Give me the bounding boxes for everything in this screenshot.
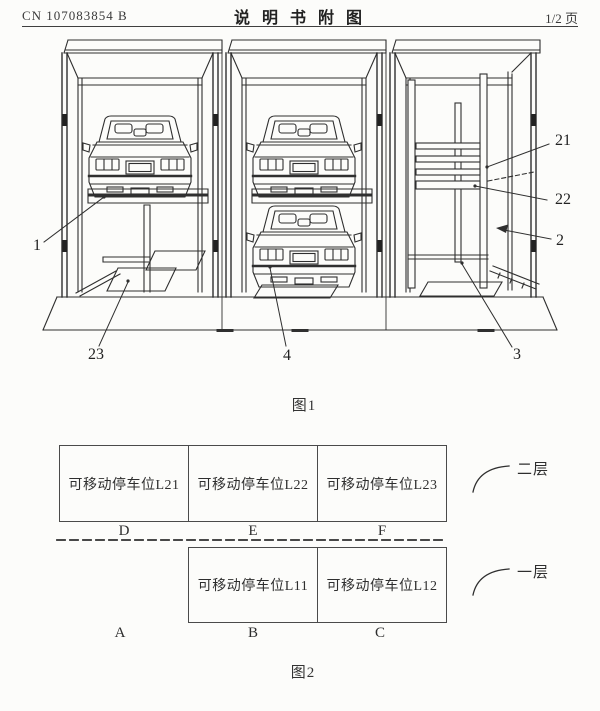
parking-slot-L23: 可移动停车位L23 [317, 445, 447, 522]
ref-label-23: 23 [88, 347, 104, 363]
ref-label-2: 2 [556, 233, 564, 249]
bay-left-frame [62, 40, 222, 297]
parking-slot-L21: 可移动停车位L21 [59, 445, 189, 522]
parking-slot-L11: 可移动停车位L11 [188, 547, 318, 623]
second-layer-brace [473, 466, 509, 492]
car-upper-left [83, 116, 197, 197]
patent-drawings-page: CN 107083854 B 说 明 书 附 图 1/2 页 [0, 0, 600, 711]
position-F: F [378, 524, 386, 539]
position-C: C [375, 626, 385, 641]
arrowhead-2 [496, 225, 508, 234]
first-layer-brace [473, 569, 509, 595]
car-upper-middle [247, 116, 361, 197]
page-title: 说 明 书 附 图 [234, 4, 366, 28]
position-E: E [248, 524, 257, 539]
leader-dots [102, 165, 508, 282]
ref-label-22: 22 [555, 192, 571, 208]
bay-middle-frame [226, 40, 386, 298]
patent-number: CN 107083854 B [22, 8, 128, 24]
base-plinth [43, 45, 557, 331]
figure2-caption: 图2 [291, 661, 316, 682]
parking-slot-L12: 可移动停车位L12 [317, 547, 447, 623]
parking-slot-L22: 可移动停车位L22 [188, 445, 318, 522]
leader-lines [44, 144, 551, 347]
position-B: B [248, 626, 258, 641]
page-indicator: 1/2 页 [545, 8, 578, 27]
ref-label-1: 1 [33, 238, 41, 254]
position-A: A [115, 626, 126, 641]
car-lower-middle [247, 206, 361, 287]
ref-label-4: 4 [283, 348, 291, 364]
first-layer-label: 一层 [517, 561, 549, 582]
bay-right-frame [390, 40, 540, 297]
position-D: D [119, 524, 130, 539]
figure1-caption: 图1 [292, 394, 317, 415]
second-layer-label: 二层 [517, 458, 549, 479]
ref-label-3: 3 [513, 347, 521, 363]
post-clips [63, 114, 537, 252]
header-rule [22, 26, 578, 27]
ref-label-21: 21 [555, 133, 571, 149]
